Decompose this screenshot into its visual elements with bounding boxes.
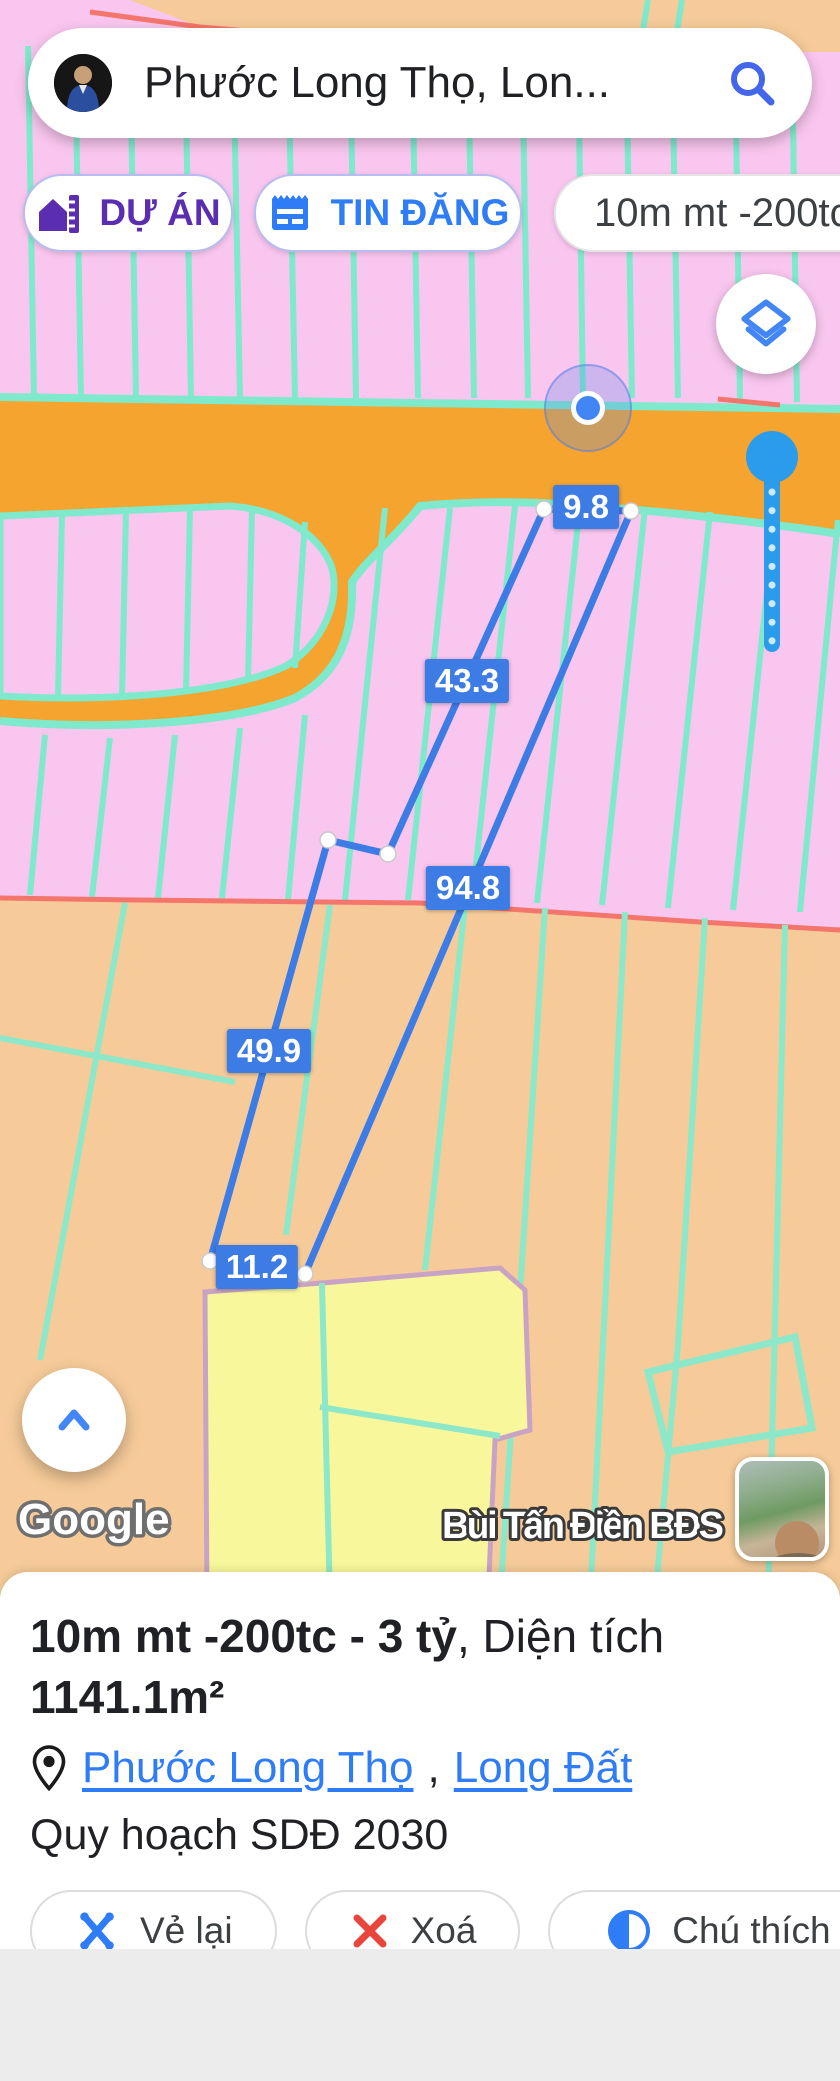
screen: 9.8 43.3 94.8 49.9 11.2 Phước Long Thọ, … [0,0,840,2081]
google-logo: Google [12,1488,187,1550]
slider-handle[interactable] [746,431,798,483]
chip-listing-info[interactable]: 10m mt -200tc - 3 [554,174,840,252]
collapse-panel-button[interactable] [22,1368,126,1472]
chip-tin-dang[interactable]: TIN ĐĂNG [254,174,522,252]
legend-label: Chú thích [672,1910,830,1952]
measurement-label-lower-left: 49.9 [227,1029,311,1073]
yellow-parcel-left [205,1283,330,1600]
system-nav-area [0,1949,840,2081]
svg-text:Google: Google [18,1495,170,1544]
listings-icon [267,190,315,236]
chevron-up-icon [48,1396,100,1444]
redraw-icon [74,1908,120,1954]
map-slider[interactable] [744,430,800,665]
location-link-ward[interactable]: Phước Long Thọ [82,1743,413,1793]
measurement-label-top: 9.8 [553,485,619,529]
search-bar[interactable]: Phước Long Thọ, Lon... [28,28,812,138]
delete-label: Xoá [411,1910,477,1952]
layers-icon [737,295,795,353]
svg-text:Bùi Tấn Điền BĐS: Bùi Tấn Điền BĐS [442,1505,724,1547]
listing-title: 10m mt -200tc - 3 tỷ, Diện tích 1141.1m² [30,1606,810,1727]
location-separator: , [427,1743,439,1793]
listing-title-mid: , Diện tích [457,1610,664,1662]
search-query[interactable]: Phước Long Thọ, Lon... [144,58,726,108]
delete-x-icon [349,1910,391,1952]
location-dot [544,364,632,452]
profile-avatar[interactable] [54,54,112,112]
chip-du-an[interactable]: DỰ ÁN [23,174,233,252]
search-icon[interactable] [726,57,778,109]
legend-contrast-icon [606,1908,652,1954]
project-icon [35,189,83,237]
brand-watermark: Bùi Tấn Điền BĐS [440,1498,740,1552]
chip-du-an-label: DỰ ÁN [99,192,220,234]
measurement-label-bottom: 11.2 [216,1245,298,1289]
measurement-label-right: 94.8 [426,866,510,910]
location-dot-core [571,391,605,425]
location-link-district[interactable]: Long Đất [454,1743,633,1793]
listing-panel: 10m mt -200tc - 3 tỷ, Diện tích 1141.1m²… [0,1572,840,1949]
listing-title-price: 10m mt -200tc - 3 tỷ [30,1610,457,1662]
fan-parcel [0,506,334,698]
measurement-label-upper-left: 43.3 [425,659,509,703]
broker-photo [735,1457,829,1561]
layers-button[interactable] [716,274,816,374]
map-pin-icon [30,1744,68,1792]
redraw-label: Vẻ lại [140,1910,233,1952]
profile-photo [54,54,112,112]
chip-listing-info-label: 10m mt -200tc - 3 [594,191,840,236]
location-row: Phước Long Thọ , Long Đất [30,1743,810,1793]
listing-area: 1141.1m² [30,1671,224,1723]
chip-tin-dang-label: TIN ĐĂNG [331,192,510,234]
zoning-plan-label: Quy hoạch SDĐ 2030 [30,1811,810,1860]
